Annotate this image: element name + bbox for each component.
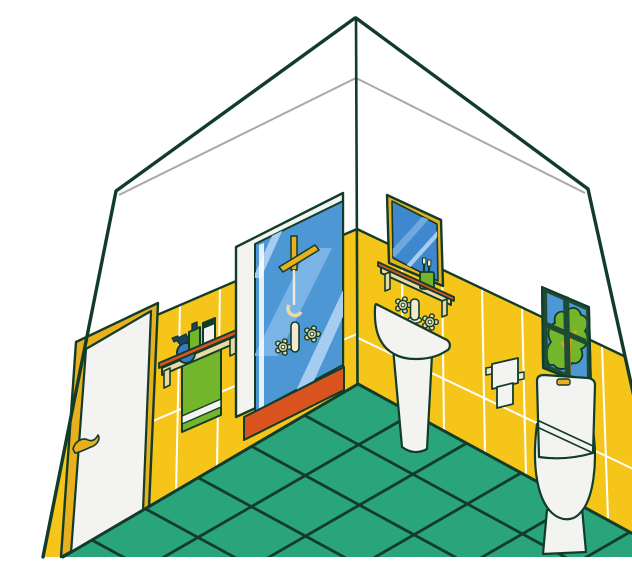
paper-flap: [497, 383, 513, 408]
faucet-spout: [411, 299, 420, 320]
bathroom-illustration: Bathroom corner illustration: [40, 16, 632, 563]
bathroom-scene-svg: [40, 16, 632, 563]
glass-inner-edge: [259, 243, 264, 412]
shower-handle: [291, 322, 299, 352]
shelf-bracket: [442, 299, 447, 317]
shelf-bracket: [164, 368, 170, 388]
corner-edge: [356, 18, 358, 384]
shelf-bracket: [385, 272, 390, 291]
toilet-tank: [537, 375, 595, 458]
holder-peg: [518, 372, 524, 380]
flush-button: [557, 379, 570, 385]
